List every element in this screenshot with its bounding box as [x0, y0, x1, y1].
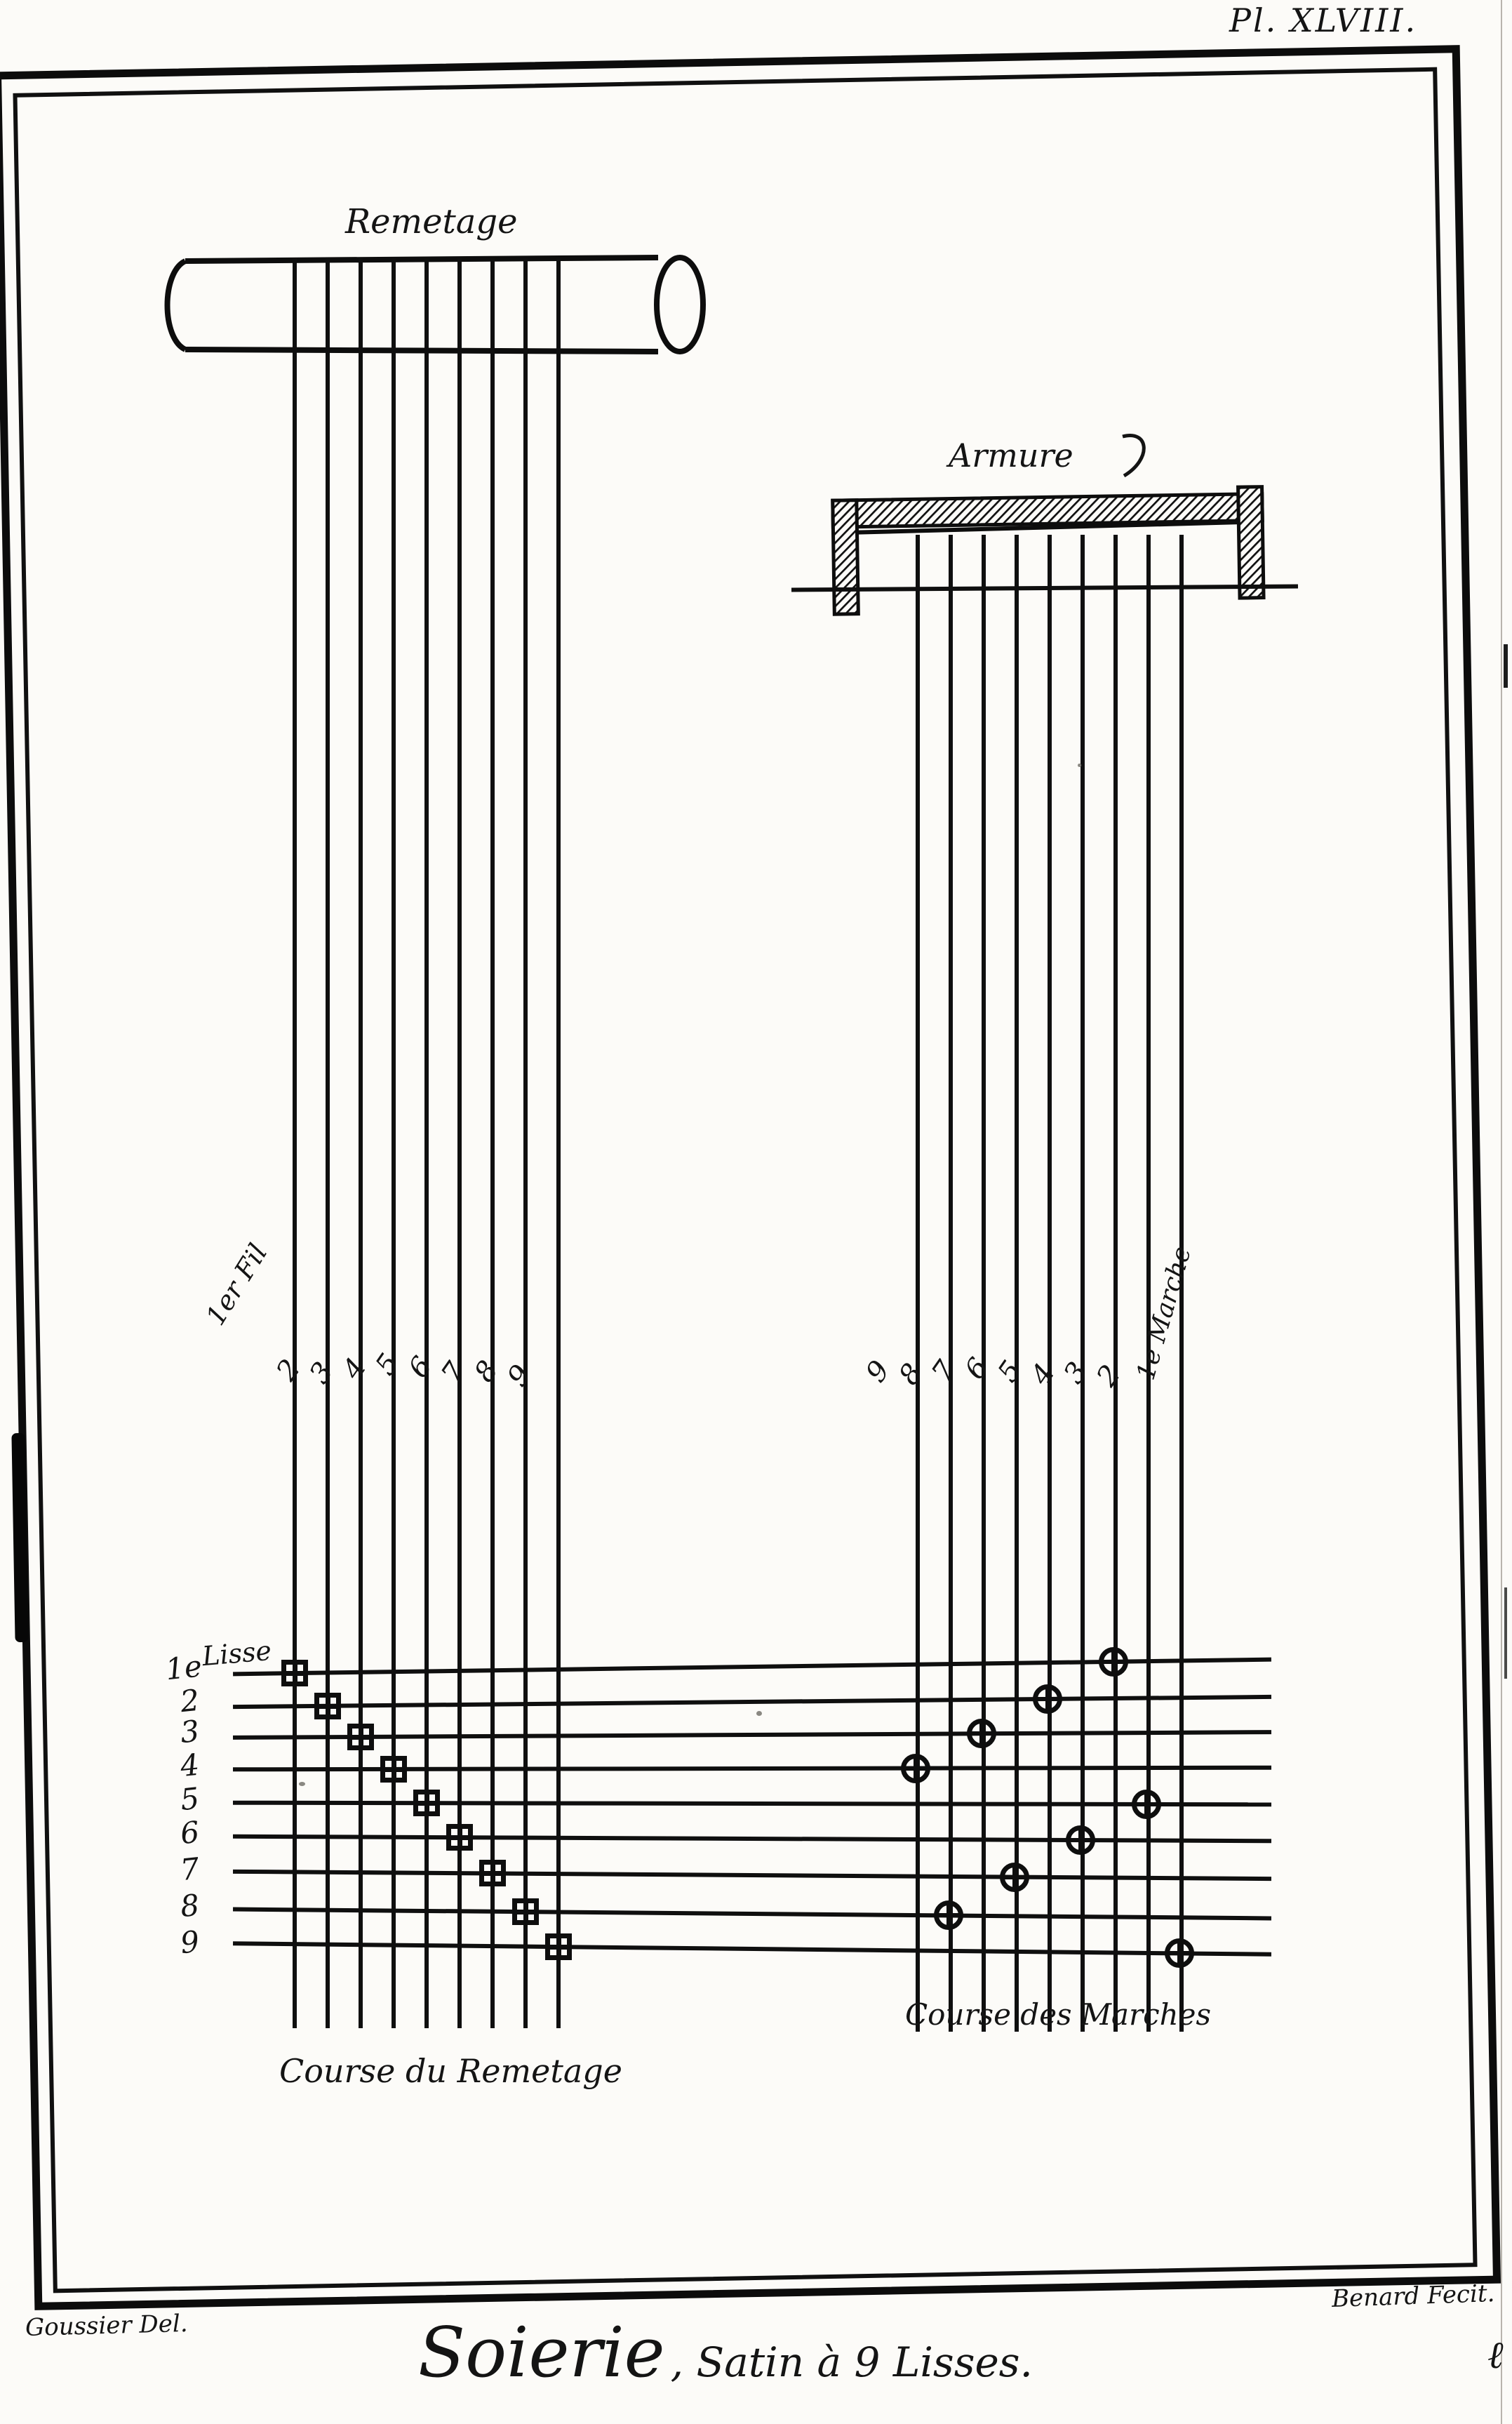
remetage-marker-2 [314, 1693, 341, 1719]
marche-marker-lisse5 [1132, 1790, 1161, 1819]
marche-thread-3 [1113, 535, 1118, 2032]
marches-caption: Course des Marches [905, 1997, 1211, 2032]
lisse-number-8: 8 [164, 1888, 201, 1926]
marche-marker-lisse3 [967, 1719, 996, 1748]
engraving-plate: Pl. XLVIII. Remetage 1er Fil 2 3 4 5 6 7… [0, 0, 1512, 2424]
paper-speck [1078, 764, 1081, 767]
fil-thread-1 [293, 258, 297, 2028]
marche-marker-lisse1 [1099, 1647, 1128, 1677]
credit-engraver: Benard Fecit. [1331, 2279, 1495, 2313]
remetage-marker-3 [347, 1724, 374, 1750]
lisse-number-5: 5 [164, 1781, 201, 1819]
fil-thread-9 [556, 258, 561, 2028]
remetage-marker-6 [446, 1824, 473, 1851]
paper-speck [756, 1711, 762, 1716]
armure-batten [828, 483, 1305, 620]
remetage-marker-4 [380, 1756, 407, 1783]
marche-thread-9 [916, 535, 920, 2032]
remetage-marker-1 [281, 1660, 308, 1686]
paper-speck [299, 1782, 305, 1786]
plate-title: Soierie , Satin à 9 Lisses. [418, 2313, 1033, 2393]
armure-title: Armure [949, 437, 1073, 474]
plate-number: Pl. XLVIII. [1229, 1, 1417, 39]
marche-marker-lisse6 [1066, 1825, 1095, 1855]
plate-title-rest: , Satin à 9 Lisses. [671, 2338, 1033, 2386]
paper-edge-mark [1504, 1587, 1507, 1679]
plate-border-inner [13, 67, 1477, 2293]
lisse-number-7: 7 [164, 1851, 201, 1889]
lisse-number-6: 6 [164, 1815, 201, 1853]
marche-marker-lisse9 [1165, 1938, 1194, 1968]
marche-marker-lisse8 [934, 1900, 963, 1930]
remetage-caption: Course du Remetage [279, 2052, 622, 2090]
remetage-marker-5 [413, 1790, 440, 1816]
marche-thread-5 [1048, 535, 1052, 2032]
fil-thread-6 [457, 258, 462, 2028]
paper-edge-mark [1504, 644, 1508, 688]
marche-marker-lisse7 [1000, 1863, 1029, 1892]
lisse-heading: Lisse [201, 1635, 272, 1672]
corner-mark: ℓ [1487, 2333, 1504, 2377]
remetage-title: Remetage [345, 202, 518, 241]
marche-thread-7 [982, 535, 986, 2032]
lisse-number-1: 1e [164, 1649, 201, 1687]
lisse-number-3: 3 [164, 1714, 201, 1752]
marche-thread-4 [1081, 535, 1085, 2032]
marche-marker-lisse2 [1033, 1684, 1062, 1714]
lisse-number-4: 4 [164, 1747, 201, 1785]
lisse-number-9: 9 [164, 1924, 201, 1962]
remetage-marker-9 [545, 1933, 572, 1960]
fil-thread-8 [523, 258, 528, 2028]
marche-thread-6 [1015, 535, 1019, 2032]
marche-thread-8 [949, 535, 953, 2032]
fil-thread-7 [490, 258, 495, 2028]
fil-thread-5 [424, 258, 429, 2028]
armure-title-flourish [1118, 429, 1155, 486]
warp-beam-cylinder [156, 251, 710, 358]
fil-thread-2 [326, 258, 330, 2028]
remetage-marker-7 [479, 1860, 506, 1886]
plate-title-script: Soierie [418, 2313, 665, 2393]
credit-delineator: Goussier Del. [25, 2310, 189, 2342]
fil-thread-3 [359, 258, 363, 2028]
paper-edge-line [1501, 0, 1502, 2424]
remetage-marker-8 [512, 1898, 539, 1925]
marche-marker-lisse4 [901, 1754, 930, 1783]
